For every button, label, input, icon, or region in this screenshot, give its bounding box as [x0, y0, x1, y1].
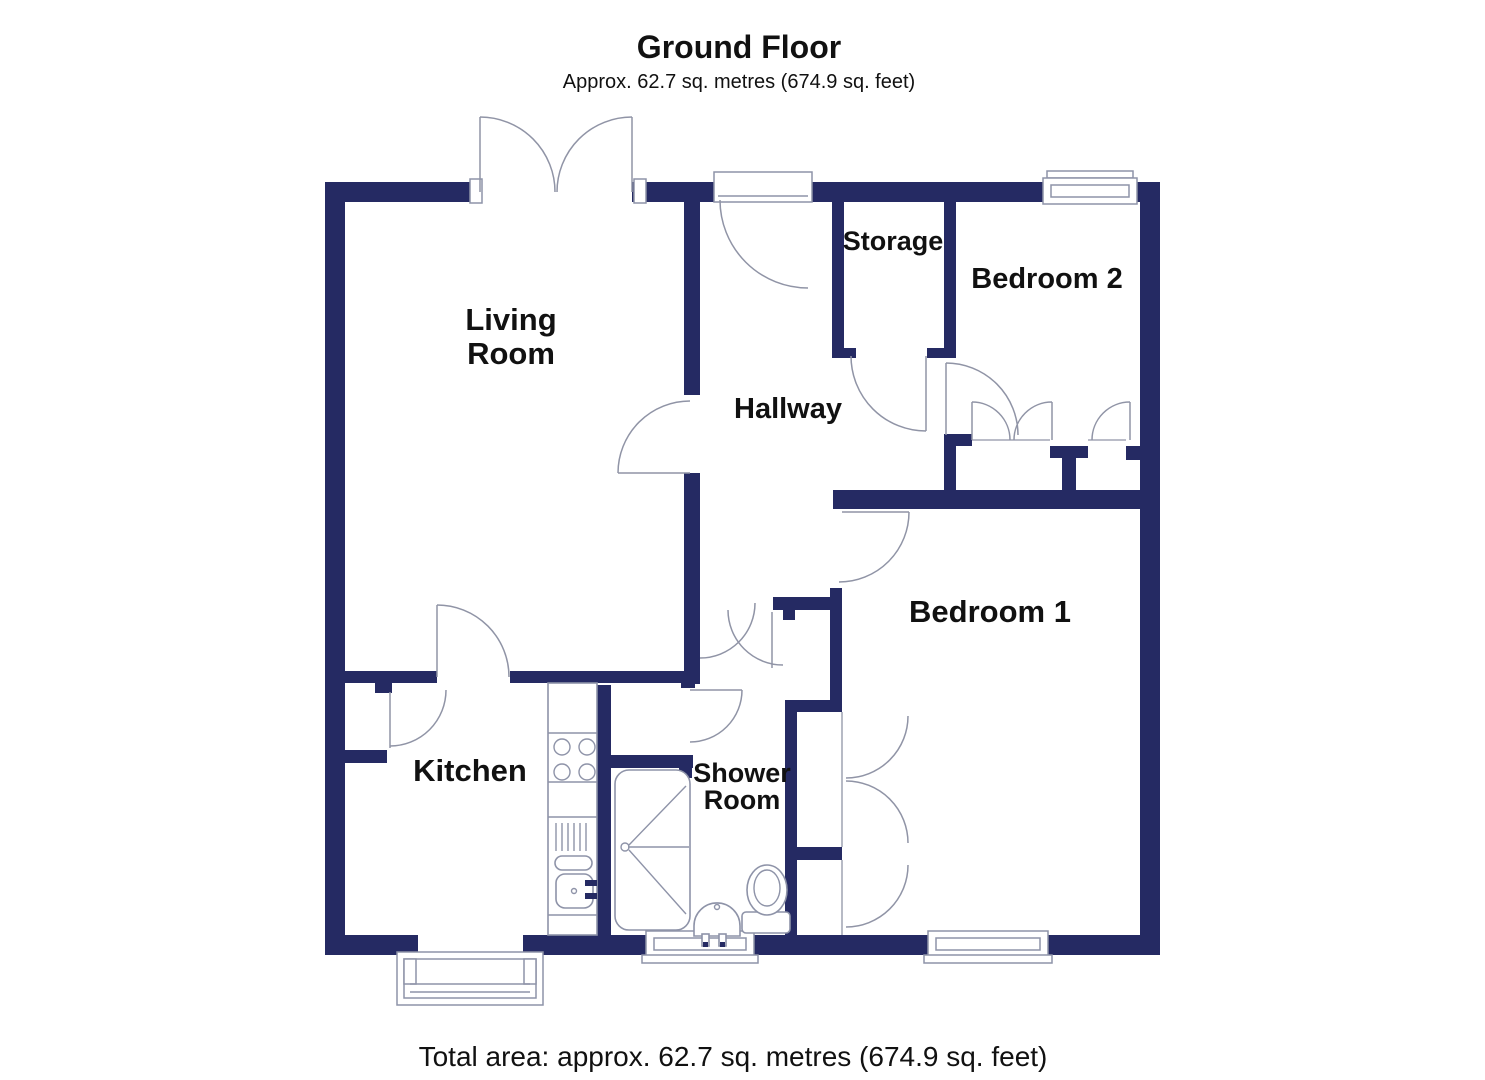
- bay-window: [397, 952, 543, 1005]
- wall-segment: [1050, 446, 1088, 458]
- label-shower-room-line2: Room: [704, 785, 781, 815]
- wall-segment: [597, 685, 611, 935]
- window-bedroom1-bottom: [924, 931, 1052, 963]
- wall-segment: [944, 202, 956, 358]
- wall-segment: [830, 588, 842, 712]
- wall-segment: [1126, 446, 1140, 460]
- wall-segment: [783, 610, 795, 620]
- wall-segment: [510, 671, 695, 683]
- label-bedroom1: Bedroom 1: [909, 594, 1071, 629]
- floorplan-drawing: Ground Floor Approx. 62.7 sq. metres (67…: [0, 0, 1485, 1080]
- floorplan-page: Ground Floor Approx. 62.7 sq. metres (67…: [0, 0, 1485, 1080]
- wall-segment: [844, 348, 856, 358]
- tap-icon: [585, 880, 597, 886]
- wall-segment: [325, 182, 478, 202]
- door-jamb: [634, 179, 646, 203]
- wall-segment: [785, 847, 842, 860]
- tap-icon: [720, 942, 725, 947]
- page-subtitle: Approx. 62.7 sq. metres (674.9 sq. feet): [563, 71, 915, 93]
- label-living-room-line2: Room: [467, 336, 555, 371]
- label-hallway: Hallway: [734, 393, 842, 425]
- tap-icon: [585, 893, 597, 899]
- wall-segment: [325, 182, 345, 955]
- label-bedroom2: Bedroom 2: [971, 263, 1122, 295]
- shower-enclosure-icon: [615, 770, 690, 930]
- wall-segment: [773, 597, 837, 610]
- wall-segment: [684, 473, 700, 684]
- wall-segment: [944, 434, 972, 446]
- wall-segment: [693, 597, 700, 610]
- wall-segment: [1140, 182, 1160, 955]
- wall-segment: [1048, 935, 1160, 955]
- wall-segment: [927, 348, 944, 358]
- label-storage: Storage: [843, 226, 944, 256]
- wall-segment: [345, 671, 437, 683]
- label-living-room-line1: Living: [465, 302, 556, 337]
- wall-segment: [345, 750, 387, 763]
- wall-segment: [681, 671, 695, 688]
- wall-segment: [375, 683, 392, 693]
- tap-icon: [703, 942, 708, 947]
- kitchen-sink-icon: [555, 856, 597, 908]
- wall-segment: [785, 712, 797, 935]
- wall-segment: [810, 182, 1047, 202]
- label-shower-room-line1: Shower: [693, 758, 791, 788]
- wall-segment: [833, 490, 1160, 509]
- wall-segment: [750, 935, 930, 955]
- wall-segment: [785, 700, 842, 712]
- wall-segment: [684, 202, 700, 395]
- page-title: Ground Floor: [637, 29, 841, 65]
- front-door-frame: [714, 172, 812, 202]
- total-area-text: Total area: approx. 62.7 sq. metres (674…: [419, 1041, 1048, 1072]
- window-bedroom2-top: [1043, 171, 1137, 204]
- label-kitchen: Kitchen: [413, 753, 527, 788]
